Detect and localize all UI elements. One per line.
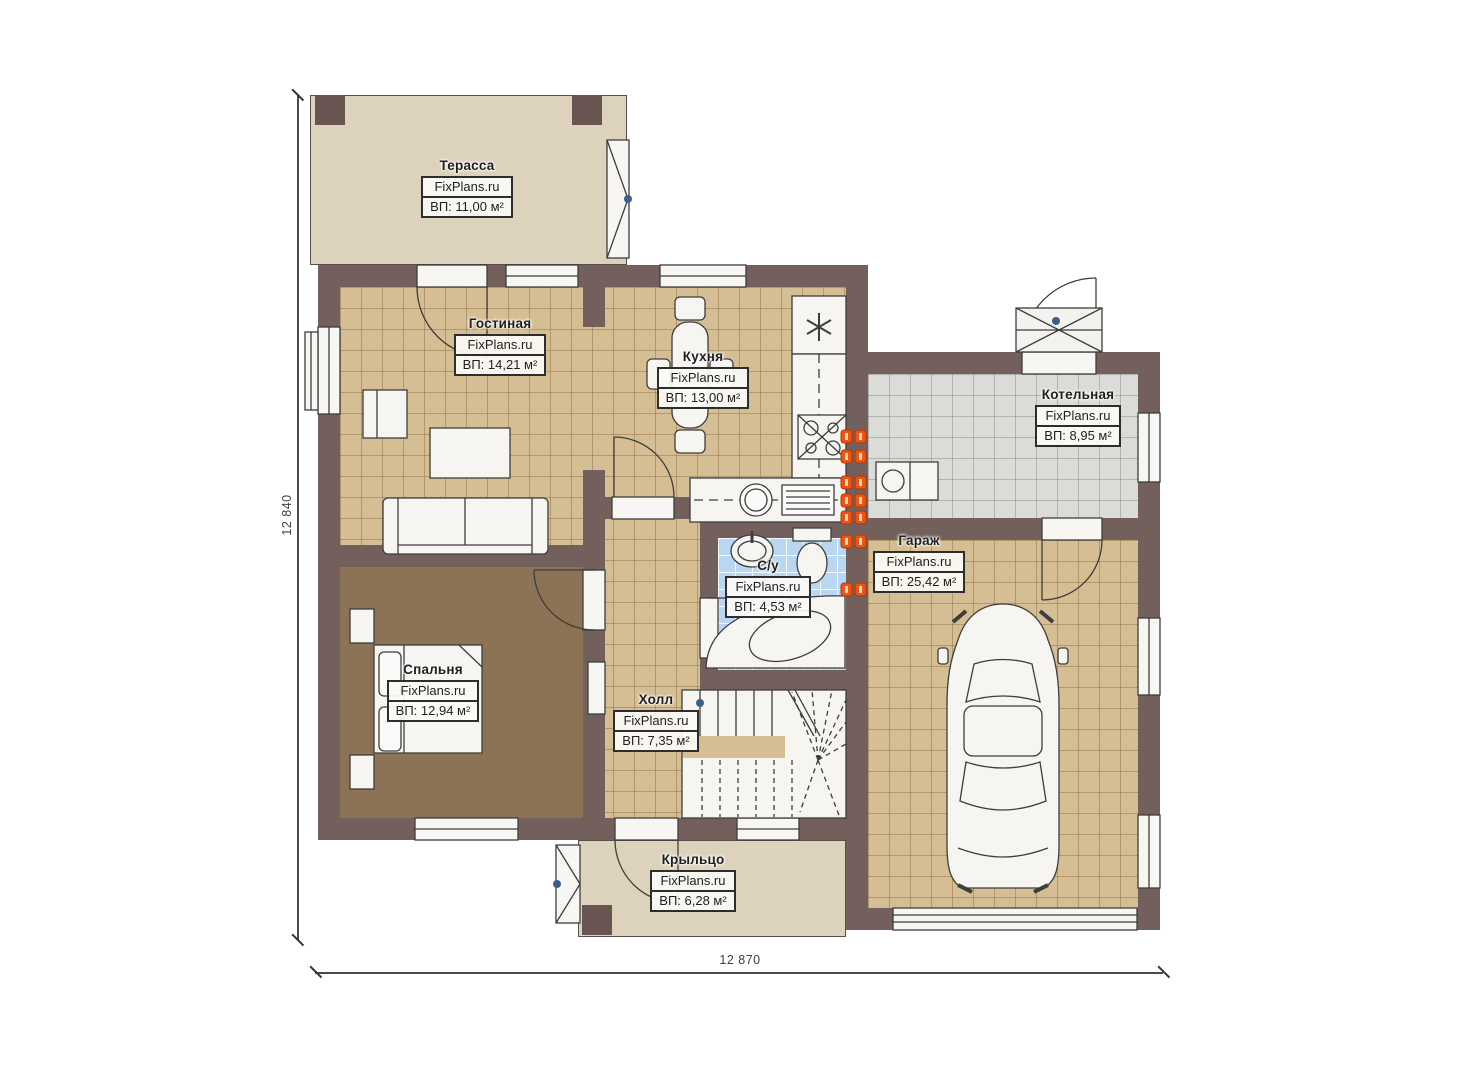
room-label-boiler: Котельная FixPlans.ru ВП: 8,95 м² (1020, 387, 1136, 447)
room-name: Кухня (683, 349, 723, 364)
dimension-left-value: 12 840 (280, 470, 294, 560)
wall-living-bedroom (340, 545, 583, 567)
room-name: Крыльцо (662, 852, 725, 867)
room-name: С/у (757, 558, 779, 573)
area-box: FixPlans.ru ВП: 4,53 м² (725, 576, 810, 618)
room-label-bathroom: С/у FixPlans.ru ВП: 4,53 м² (718, 558, 818, 618)
canopy (1016, 308, 1102, 352)
room-label-living: Гостиная FixPlans.ru ВП: 14,21 м² (440, 316, 560, 376)
watermark: FixPlans.ru (1037, 407, 1118, 427)
dimension-line-bottom (315, 972, 1163, 974)
garage-floor (868, 540, 1138, 908)
room-area: ВП: 12,94 м² (389, 702, 478, 720)
watermark: FixPlans.ru (875, 553, 964, 573)
watermark: FixPlans.ru (659, 369, 748, 389)
room-name: Котельная (1042, 387, 1114, 402)
terrace-post-left (315, 95, 345, 125)
room-area: ВП: 11,00 м² (423, 198, 511, 216)
area-box: FixPlans.ru ВП: 6,28 м² (650, 870, 735, 912)
wall-wing-bottom (846, 908, 1160, 930)
wall-bottom (318, 818, 868, 840)
room-area: ВП: 6,28 м² (652, 892, 733, 910)
watermark: FixPlans.ru (423, 178, 511, 198)
room-label-porch: Крыльцо FixPlans.ru ВП: 6,28 м² (640, 852, 746, 912)
area-box: FixPlans.ru ВП: 11,00 м² (421, 176, 513, 218)
watermark: FixPlans.ru (456, 336, 545, 356)
wall-living-kitchen-stub (583, 287, 605, 327)
dimension-bottom-value: 12 870 (690, 953, 790, 967)
room-name: Спальня (403, 662, 463, 677)
room-name: Гараж (898, 533, 939, 548)
wall-bathroom-left-a (700, 538, 718, 598)
watermark: FixPlans.ru (389, 682, 478, 702)
room-name: Терасса (440, 158, 495, 173)
room-label-hall: Холл FixPlans.ru ВП: 7,35 м² (608, 692, 704, 752)
wall-wing-top (846, 352, 1160, 374)
watermark: FixPlans.ru (652, 872, 733, 892)
porch-post (582, 905, 612, 935)
room-area: ВП: 4,53 м² (727, 598, 808, 616)
terrace-post-right (572, 95, 602, 125)
room-area: ВП: 13,00 м² (659, 389, 748, 407)
room-label-bedroom: Спальня FixPlans.ru ВП: 12,94 м² (378, 662, 488, 722)
room-label-kitchen: Кухня FixPlans.ru ВП: 13,00 м² (643, 349, 763, 409)
wall-wing-right (1138, 352, 1160, 930)
room-name: Холл (639, 692, 674, 707)
porch-steps (556, 845, 580, 923)
wall-bathroom-left-b (700, 658, 718, 670)
room-area: ВП: 14,21 м² (456, 356, 545, 374)
wall-bedroom-hall (583, 630, 605, 818)
room-label-garage: Гараж FixPlans.ru ВП: 25,42 м² (858, 533, 980, 593)
room-name: Гостиная (469, 316, 532, 331)
wall-living-hall (583, 470, 605, 570)
area-box: FixPlans.ru ВП: 13,00 м² (657, 367, 750, 409)
wall-right-upper (846, 265, 868, 352)
wall-kitchen-hall (605, 497, 700, 519)
room-area: ВП: 8,95 м² (1037, 427, 1118, 445)
area-box: FixPlans.ru ВП: 12,94 м² (387, 680, 480, 722)
wall-center (846, 352, 868, 908)
watermark: FixPlans.ru (615, 712, 696, 732)
wall-bathroom-top (700, 517, 846, 538)
floor-plan: Терасса FixPlans.ru ВП: 11,00 м² Гостина… (0, 0, 1473, 1080)
room-area: ВП: 25,42 м² (875, 573, 964, 591)
area-box: FixPlans.ru ВП: 25,42 м² (873, 551, 966, 593)
room-label-terrace: Терасса FixPlans.ru ВП: 11,00 м² (408, 158, 526, 218)
dimension-line-left (297, 95, 299, 940)
wall-left (318, 265, 340, 840)
room-area: ВП: 7,35 м² (615, 732, 696, 750)
watermark: FixPlans.ru (727, 578, 808, 598)
wall-bathroom-bottom (700, 670, 846, 690)
wall-top (318, 265, 868, 287)
area-box: FixPlans.ru ВП: 14,21 м² (454, 334, 547, 376)
area-box: FixPlans.ru ВП: 7,35 м² (613, 710, 698, 752)
area-box: FixPlans.ru ВП: 8,95 м² (1035, 405, 1120, 447)
